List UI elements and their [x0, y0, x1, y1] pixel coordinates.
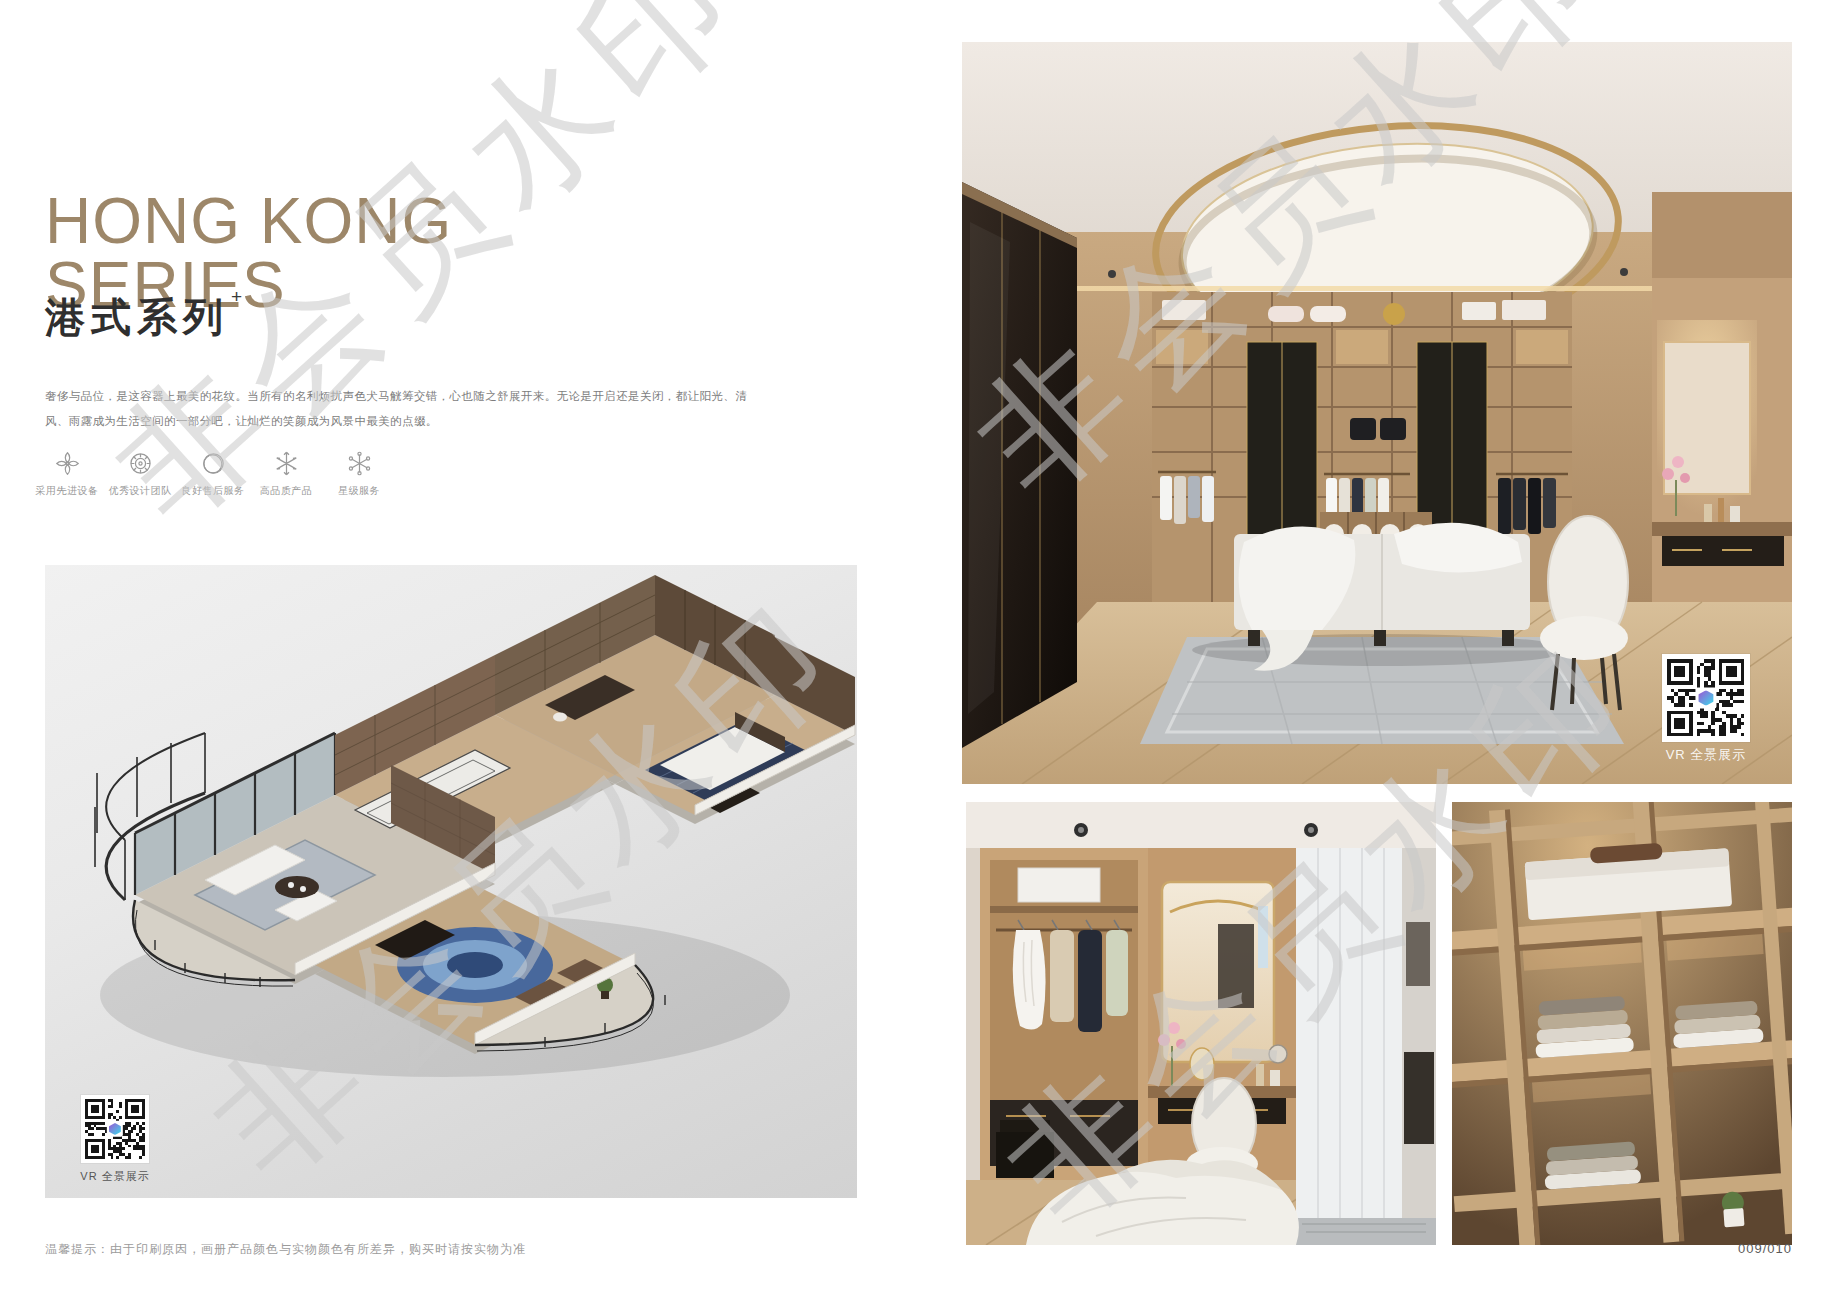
title-plus-mark: + [231, 286, 242, 307]
series-description-line2: 风、雨露成为生活空间的一部分吧，让灿烂的笑颜成为风景中最美的点缀。 [45, 409, 747, 434]
page-title-cn: 港式系列+ [45, 290, 240, 345]
feature-equipment: 采用先进设备 [36, 450, 98, 498]
feature-label: 高品质产品 [260, 484, 313, 498]
feature-quality: 高品质产品 [255, 450, 317, 498]
rosette-icon [127, 450, 154, 477]
qr-cube-logo-icon [1695, 687, 1716, 708]
floorplan-qr-code [81, 1095, 149, 1163]
main-photo-vr-label: VR 全景展示 [1634, 746, 1778, 764]
photo-dressing-corner [966, 802, 1436, 1245]
feature-design-team: 优秀设计团队 [109, 450, 171, 498]
photo-shelf-closeup [1452, 802, 1792, 1245]
feature-label: 采用先进设备 [36, 484, 99, 498]
snowflake-icon [273, 450, 300, 477]
feature-star-service: 星级服务 [328, 450, 390, 498]
floorplan-image: VR 全景展示 [45, 565, 857, 1198]
footer-note: 温馨提示：由于印刷原因，画册产品颜色与实物颜色有所差异，购买时请按实物为准 [45, 1241, 526, 1258]
series-description-line1: 奢侈与品位，是这容器上最美的花纹。当所有的名利烦扰声色犬马觥筹交错，心也随之舒展… [45, 384, 747, 409]
page-number: 009/010 [1668, 1241, 1792, 1256]
floorplan-vr-label: VR 全景展示 [53, 1169, 177, 1184]
qr-cube-logo-icon [107, 1121, 123, 1137]
main-photo-walkin-closet: VR 全景展示 [962, 42, 1792, 784]
main-photo-qr-code [1662, 654, 1750, 742]
dressing-corner-illustration [966, 802, 1436, 1245]
glass-wardrobe [962, 182, 1077, 748]
ring-icon [200, 450, 227, 477]
wall-paneling [1296, 848, 1436, 1245]
series-description: 奢侈与品位，是这容器上最美的花纹。当所有的名利烦扰声色犬马觥筹交错，心也随之舒展… [45, 384, 747, 434]
feature-list: 采用先进设备 优秀设计团队 良好售后服务 高品质产品 [36, 450, 390, 498]
shelf-closeup-illustration [1452, 802, 1792, 1245]
feature-label: 优秀设计团队 [109, 484, 172, 498]
page-title-cn-text: 港式系列 [45, 295, 229, 339]
feature-after-sales: 良好售后服务 [182, 450, 244, 498]
catalog-page: HONG KONG SERIES 港式系列+ 奢侈与品位，是这容器上最美的花纹。… [0, 0, 1836, 1307]
open-wardrobe [980, 848, 1148, 1180]
floorplan-illustration [45, 565, 857, 1198]
feature-label: 良好售后服务 [182, 484, 245, 498]
feature-label: 星级服务 [338, 484, 380, 498]
ornament-flower-icon [54, 450, 81, 477]
bed-ottoman [1192, 523, 1572, 671]
star-service-icon [346, 450, 373, 477]
page-title-line1: HONG KONG [45, 189, 452, 253]
decor-plant [1721, 1191, 1745, 1227]
